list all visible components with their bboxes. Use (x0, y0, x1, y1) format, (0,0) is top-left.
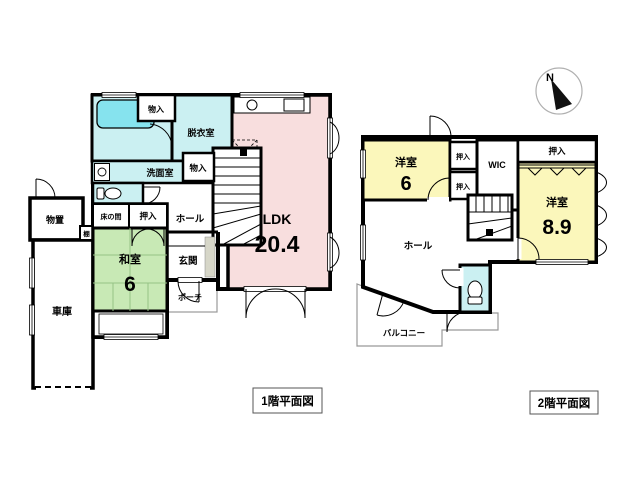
pillar-mark-f2 (486, 229, 493, 236)
oshiire-f1-label: 押入 (139, 211, 157, 221)
oshiire-lower-label: 押入 (456, 182, 470, 191)
garage-label: 車庫 (52, 305, 72, 318)
washitsu-label: 和室 (119, 252, 141, 266)
stove-icon (284, 99, 304, 111)
oshiire-upper-label: 押入 (456, 152, 470, 161)
floor2-title: 2階平面図 (538, 396, 590, 410)
yoshitsu6-area-label: 6 (400, 173, 411, 195)
garage-door-gap (36, 384, 90, 391)
compass: N (536, 68, 582, 114)
hall-f1-label: ホール (176, 214, 205, 225)
floor-plan-page: 物入 脱衣室 洗面室 物置 棚 床の間 押入 ホール 物入 LDK 20.4 和… (0, 0, 640, 477)
kitchen-counter-icon (234, 97, 310, 113)
ldk-label: LDK (263, 211, 292, 227)
floor1-title: 1階平面図 (261, 394, 313, 408)
pillar-mark (240, 149, 247, 156)
monoire-top-label: 物入 (148, 104, 164, 114)
washitsu-area-label: 6 (124, 273, 136, 296)
ldk-area-label: 20.4 (255, 231, 300, 257)
floor1-plan: 物入 脱衣室 洗面室 物置 棚 床の間 押入 ホール 物入 LDK 20.4 和… (30, 93, 340, 392)
oshiire-wide-label: 押入 (548, 146, 566, 156)
toilet2-icon (468, 281, 482, 304)
datsuishitsu-label: 脱衣室 (187, 127, 214, 138)
wic-label: WIC (488, 160, 506, 170)
toilet-icon (97, 188, 121, 199)
porch-label: ポーチ (178, 292, 202, 302)
senmenshitsu-label: 洗面室 (146, 167, 173, 178)
sink-icon (95, 164, 110, 181)
floor2-title-box: 2階平面図 (530, 391, 598, 414)
yoshitsu6-label: 洋室 (395, 155, 417, 169)
tana-label: 棚 (83, 229, 90, 238)
genkan-floor-strip (205, 237, 215, 277)
floor-plan-drawing: 物入 脱衣室 洗面室 物置 棚 床の間 押入 ホール 物入 LDK 20.4 和… (0, 0, 640, 477)
floor1-title-box: 1階平面図 (253, 388, 322, 413)
kitchen-sink-icon (247, 100, 257, 110)
genkan-label: 玄関 (178, 255, 197, 267)
yoshitsu89-label: 洋室 (546, 195, 568, 209)
yoshitsu89-area-label: 8.9 (542, 216, 571, 239)
floor2-plan: 洋室 6 押入 押入 WIC 押入 洋室 8.9 ホール バルコニー (357, 116, 607, 346)
yoshitsu89-room (518, 162, 596, 262)
balcony-label: バルコニー (383, 328, 425, 338)
monooki-label: 物置 (46, 214, 64, 225)
monoire-stairs-label: 物入 (189, 163, 207, 173)
tokonoma-label: 床の間 (101, 212, 122, 221)
hall-f2-label: ホール (404, 241, 433, 252)
compass-north-label: N (546, 72, 554, 84)
